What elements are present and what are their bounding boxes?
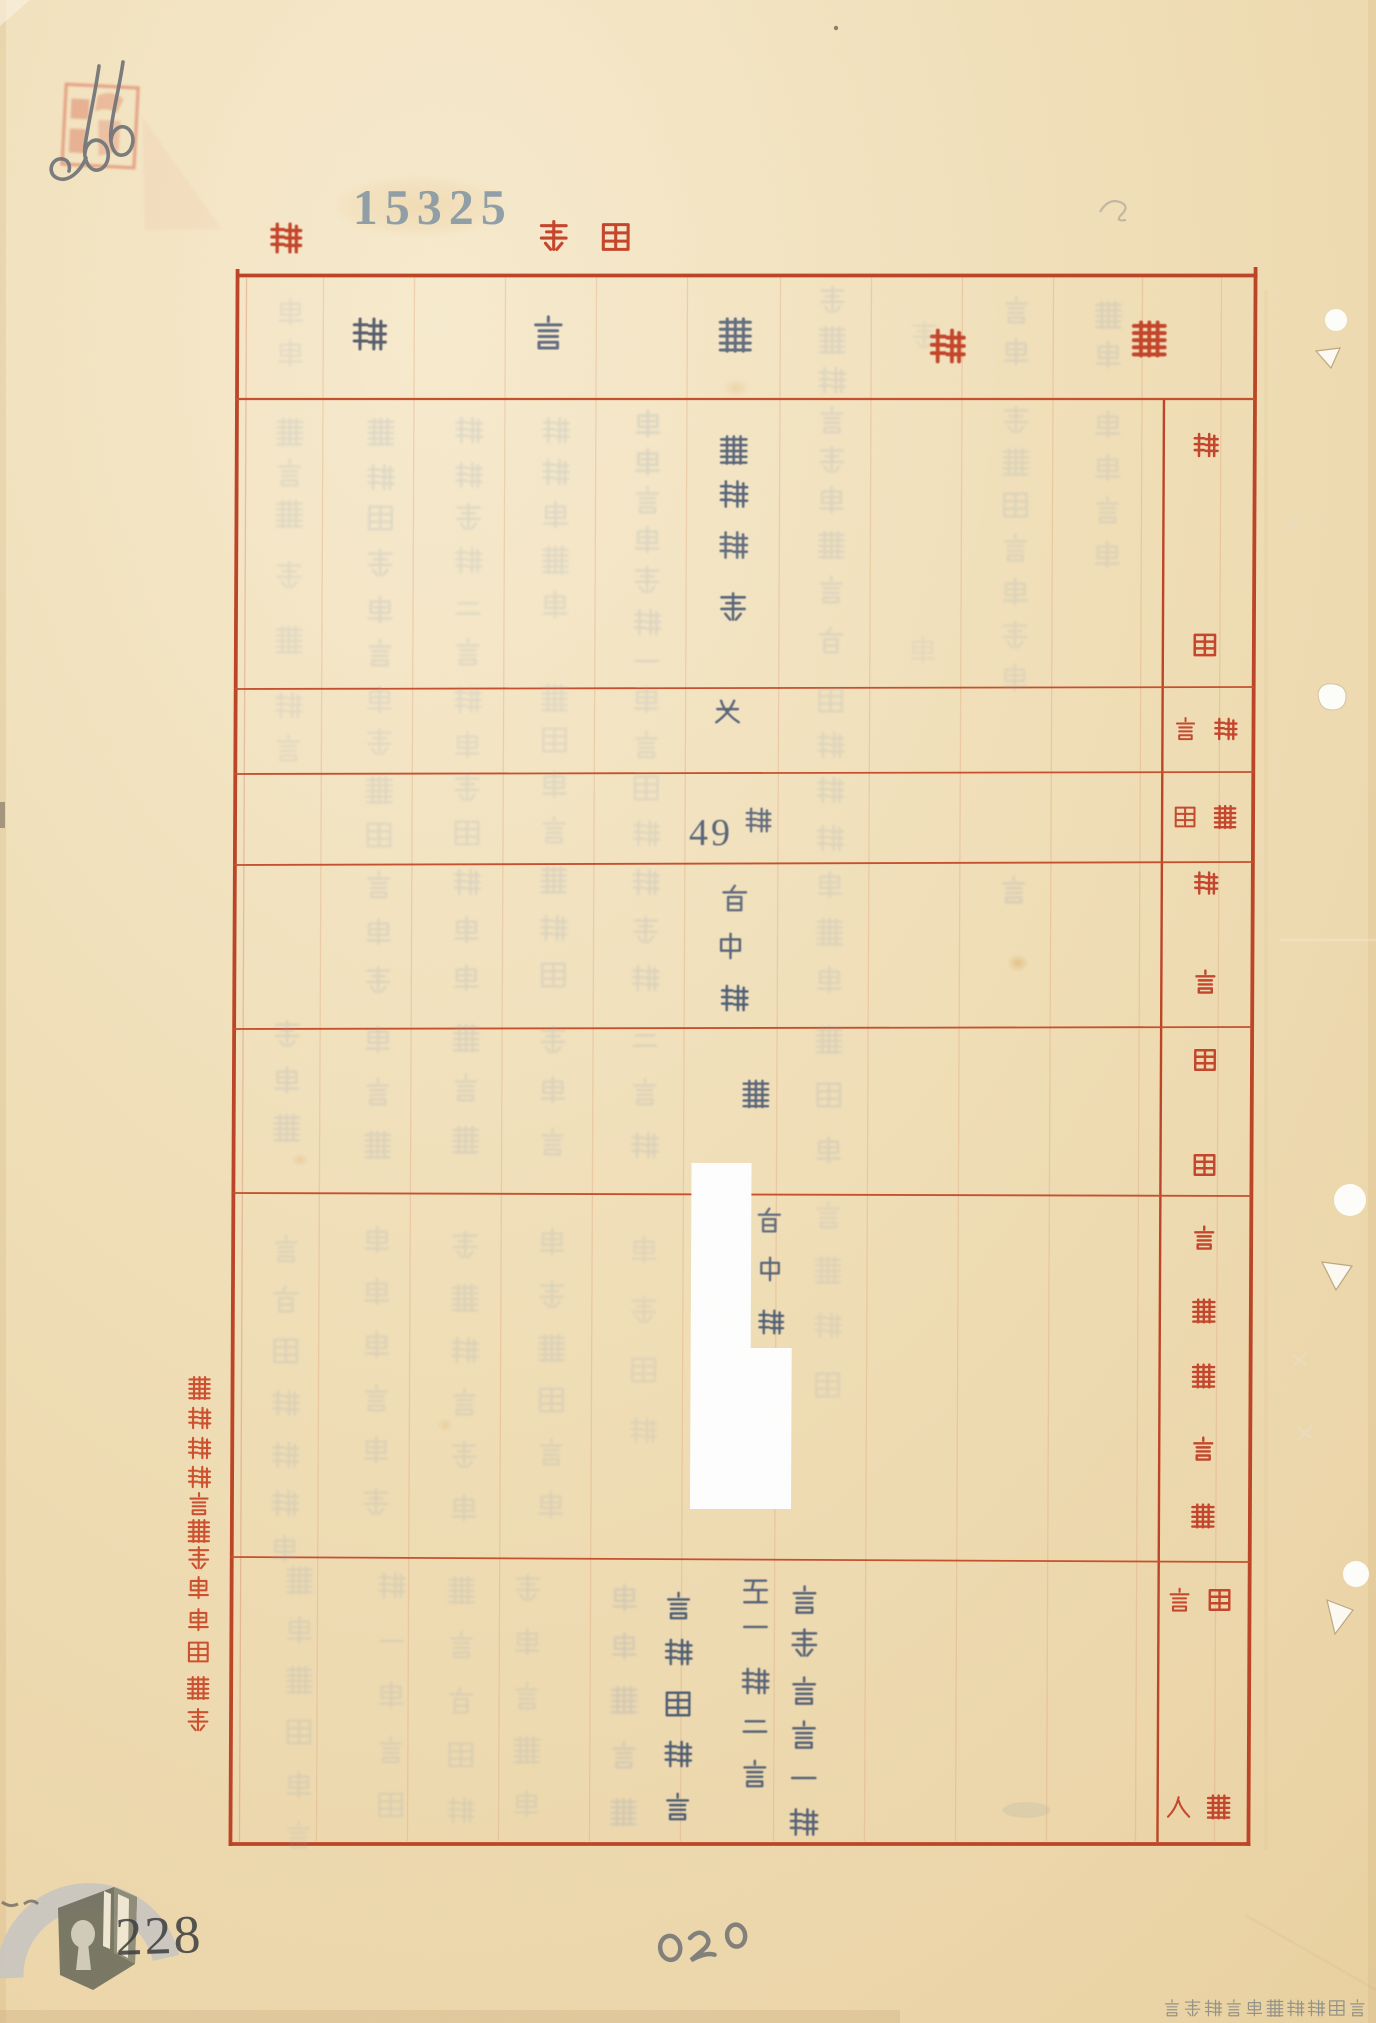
svg-text:49: 49 xyxy=(689,812,733,854)
svg-text:228: 228 xyxy=(114,1904,203,1967)
svg-text:15325: 15325 xyxy=(353,179,513,235)
